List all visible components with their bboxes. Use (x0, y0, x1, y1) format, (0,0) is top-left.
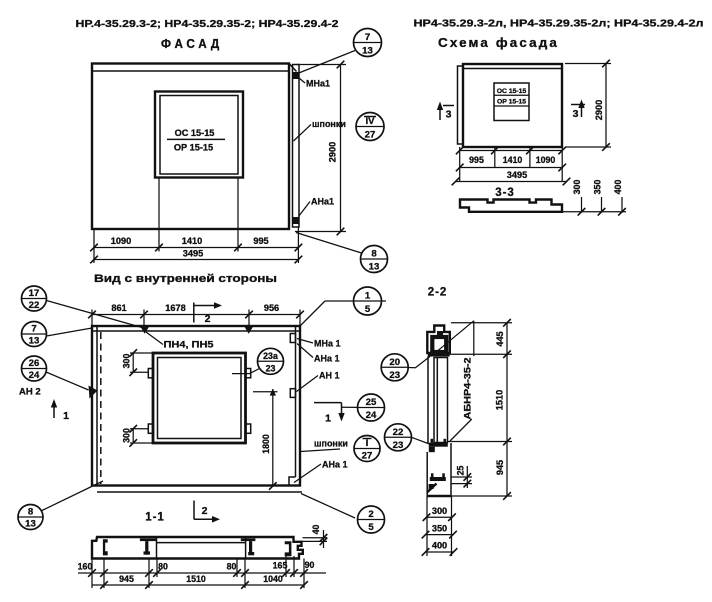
svg-text:8: 8 (371, 249, 377, 260)
svg-text:350: 350 (432, 524, 447, 534)
svg-text:МНа 1: МНа 1 (314, 339, 341, 349)
svg-text:22: 22 (29, 300, 40, 311)
svg-text:945: 945 (119, 574, 134, 584)
svg-text:165: 165 (273, 561, 288, 571)
svg-text:2: 2 (368, 509, 373, 520)
svg-text:НР.4-35.29.3-2; НР4-35.29.35-2: НР.4-35.29.3-2; НР4-35.29.35-2; НР4-35.2… (76, 18, 339, 30)
svg-text:13: 13 (29, 336, 40, 347)
svg-text:3: 3 (446, 109, 452, 121)
svg-text:ПН4, ПН5: ПН4, ПН5 (164, 340, 215, 351)
svg-text:995: 995 (253, 236, 268, 246)
svg-text:160: 160 (78, 562, 93, 572)
svg-text:80: 80 (158, 562, 168, 572)
svg-text:АНа 1: АНа 1 (314, 354, 340, 364)
svg-text:26: 26 (29, 358, 40, 369)
svg-text:22: 22 (393, 427, 404, 438)
svg-text:1410: 1410 (503, 155, 523, 165)
svg-text:НР4-35.29.3-2л, НР4-35.29.35-2: НР4-35.29.3-2л, НР4-35.29.35-2л; НР4-35.… (414, 18, 704, 30)
svg-text:1: 1 (63, 410, 69, 422)
svg-text:1090: 1090 (536, 155, 556, 165)
svg-text:ОР 15-15: ОР 15-15 (497, 99, 526, 106)
svg-text:8: 8 (28, 507, 34, 518)
svg-text:шпонки: шпонки (312, 119, 346, 129)
svg-text:1: 1 (365, 291, 371, 302)
svg-text:2900: 2900 (594, 100, 604, 120)
svg-text:300: 300 (122, 428, 132, 443)
svg-text:27: 27 (365, 130, 376, 141)
svg-text:ОС 15-15: ОС 15-15 (175, 128, 215, 138)
svg-text:7: 7 (31, 324, 36, 335)
svg-text:1-1: 1-1 (145, 512, 165, 524)
svg-text:2: 2 (202, 505, 208, 517)
svg-text:23: 23 (393, 440, 404, 451)
svg-text:13: 13 (369, 262, 380, 273)
svg-text:3: 3 (573, 108, 579, 120)
svg-text:5: 5 (365, 304, 371, 315)
svg-text:2: 2 (205, 313, 211, 325)
svg-text:23: 23 (266, 364, 276, 374)
svg-text:АН 2: АН 2 (19, 387, 41, 398)
svg-text:АНа 1: АНа 1 (322, 460, 348, 470)
svg-text:7: 7 (365, 32, 370, 43)
svg-text:1: 1 (325, 413, 331, 425)
svg-text:300: 300 (122, 354, 132, 369)
svg-text:5: 5 (368, 522, 374, 533)
svg-text:23а: 23а (263, 351, 278, 361)
svg-text:шпонки: шпонки (314, 439, 348, 449)
svg-text:24: 24 (29, 370, 40, 381)
svg-text:ОС 15-15: ОС 15-15 (497, 88, 527, 95)
svg-text:350: 350 (593, 180, 603, 195)
svg-text:956: 956 (264, 303, 279, 313)
svg-text:27: 27 (362, 451, 373, 462)
svg-text:80: 80 (227, 562, 237, 572)
svg-text:17: 17 (29, 288, 40, 299)
svg-text:1040: 1040 (263, 574, 283, 584)
svg-text:40: 40 (311, 525, 321, 535)
svg-text:Схема фасада: Схема фасада (438, 36, 559, 50)
svg-text:3-3: 3-3 (495, 187, 515, 199)
svg-text:945: 945 (495, 460, 505, 475)
svg-text:20: 20 (389, 357, 400, 368)
svg-text:МНа1: МНа1 (306, 79, 330, 89)
svg-text:2900: 2900 (328, 142, 338, 162)
svg-text:1090: 1090 (111, 236, 131, 246)
svg-text:300: 300 (432, 506, 447, 516)
svg-text:IV: IV (365, 116, 375, 127)
svg-text:1678: 1678 (165, 303, 185, 313)
svg-text:3495: 3495 (507, 170, 527, 180)
svg-text:13: 13 (25, 519, 36, 530)
svg-text:400: 400 (432, 541, 447, 551)
svg-text:90: 90 (305, 560, 315, 570)
svg-text:25: 25 (456, 466, 466, 476)
svg-text:861: 861 (111, 303, 126, 313)
svg-text:300: 300 (572, 180, 582, 195)
svg-text:АБНР4-35-2: АБНР4-35-2 (463, 358, 473, 420)
svg-text:1800: 1800 (261, 434, 271, 454)
svg-text:2-2: 2-2 (428, 287, 448, 299)
svg-text:1510: 1510 (186, 574, 206, 584)
svg-text:995: 995 (469, 155, 484, 165)
svg-text:ФАСАД: ФАСАД (161, 37, 223, 51)
svg-text:I: I (366, 438, 369, 449)
svg-text:13: 13 (362, 46, 373, 57)
svg-text:1510: 1510 (495, 390, 505, 410)
svg-text:445: 445 (495, 331, 505, 346)
svg-text:1410: 1410 (182, 236, 202, 246)
svg-text:АН 1: АН 1 (319, 371, 340, 381)
svg-text:ОР 15-15: ОР 15-15 (174, 143, 213, 153)
svg-text:Вид с внутренней стороны: Вид с внутренней стороны (94, 273, 277, 285)
svg-text:23: 23 (389, 370, 400, 381)
svg-text:25: 25 (366, 397, 377, 408)
svg-text:24: 24 (366, 410, 377, 421)
svg-text:400: 400 (613, 180, 623, 195)
svg-text:АНа1: АНа1 (311, 197, 334, 207)
svg-text:3495: 3495 (183, 249, 203, 259)
